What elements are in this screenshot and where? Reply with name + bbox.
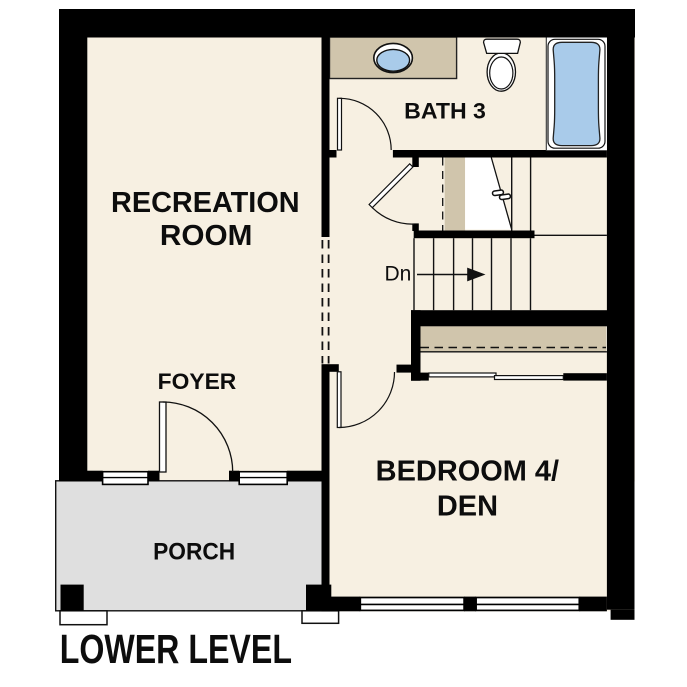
svg-text:RECREATION: RECREATION bbox=[111, 187, 300, 219]
svg-text:FOYER: FOYER bbox=[158, 369, 237, 394]
svg-text:Dn: Dn bbox=[385, 262, 412, 285]
svg-text:DEN: DEN bbox=[437, 490, 498, 522]
svg-text:PORCH: PORCH bbox=[153, 538, 235, 565]
svg-text:BEDROOM 4/: BEDROOM 4/ bbox=[376, 455, 559, 487]
svg-text:LOWER LEVEL: LOWER LEVEL bbox=[60, 626, 292, 672]
svg-text:ROOM: ROOM bbox=[160, 220, 253, 252]
svg-text:BATH 3: BATH 3 bbox=[404, 99, 486, 124]
